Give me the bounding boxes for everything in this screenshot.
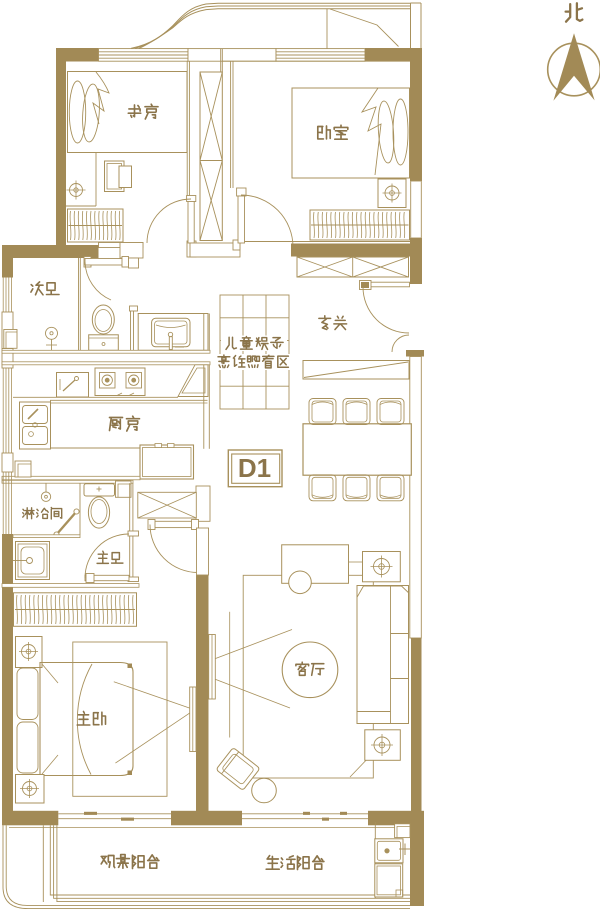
svg-text:D1: D1 [238, 453, 271, 483]
